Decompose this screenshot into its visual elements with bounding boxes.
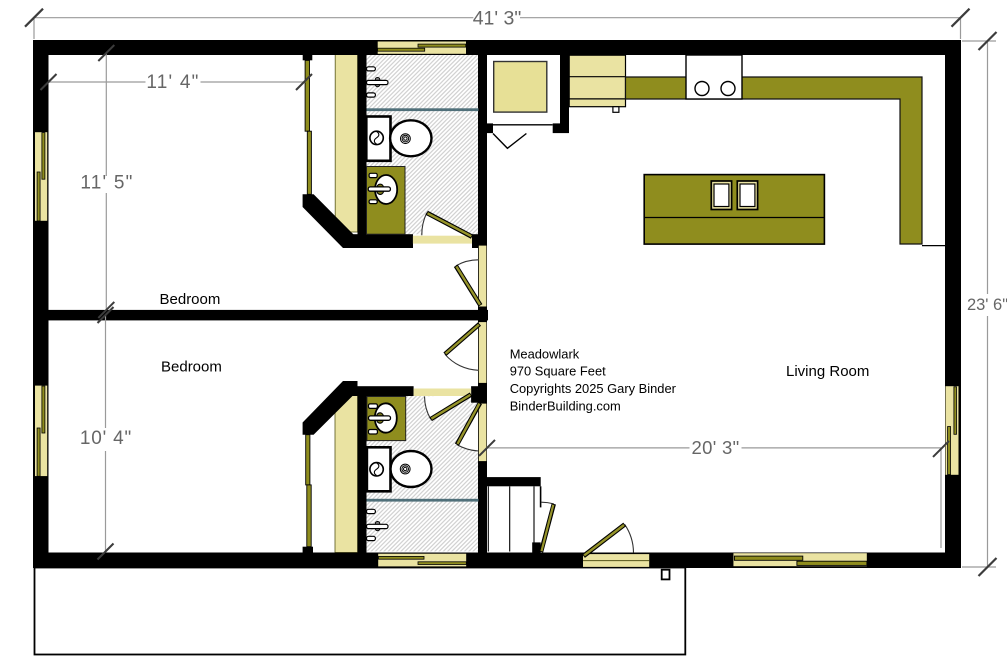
- svg-text:11' 4": 11' 4": [146, 72, 199, 93]
- svg-text:Meadowlark: Meadowlark: [510, 346, 580, 361]
- svg-text:23' 6": 23' 6": [967, 296, 1007, 314]
- svg-text:Bedroom: Bedroom: [161, 358, 222, 375]
- svg-text:Living Room: Living Room: [786, 363, 869, 380]
- svg-text:41' 3": 41' 3": [473, 8, 522, 30]
- svg-text:Copyrights 2025 Gary Binder: Copyrights 2025 Gary Binder: [510, 381, 677, 396]
- svg-text:10' 4": 10' 4": [80, 428, 132, 449]
- svg-text:Bedroom: Bedroom: [160, 291, 221, 308]
- svg-text:970 Square Feet: 970 Square Feet: [510, 364, 606, 379]
- svg-text:11' 5": 11' 5": [80, 172, 133, 193]
- svg-text:BinderBuilding.com: BinderBuilding.com: [510, 398, 621, 413]
- svg-text:20' 3": 20' 3": [692, 437, 740, 458]
